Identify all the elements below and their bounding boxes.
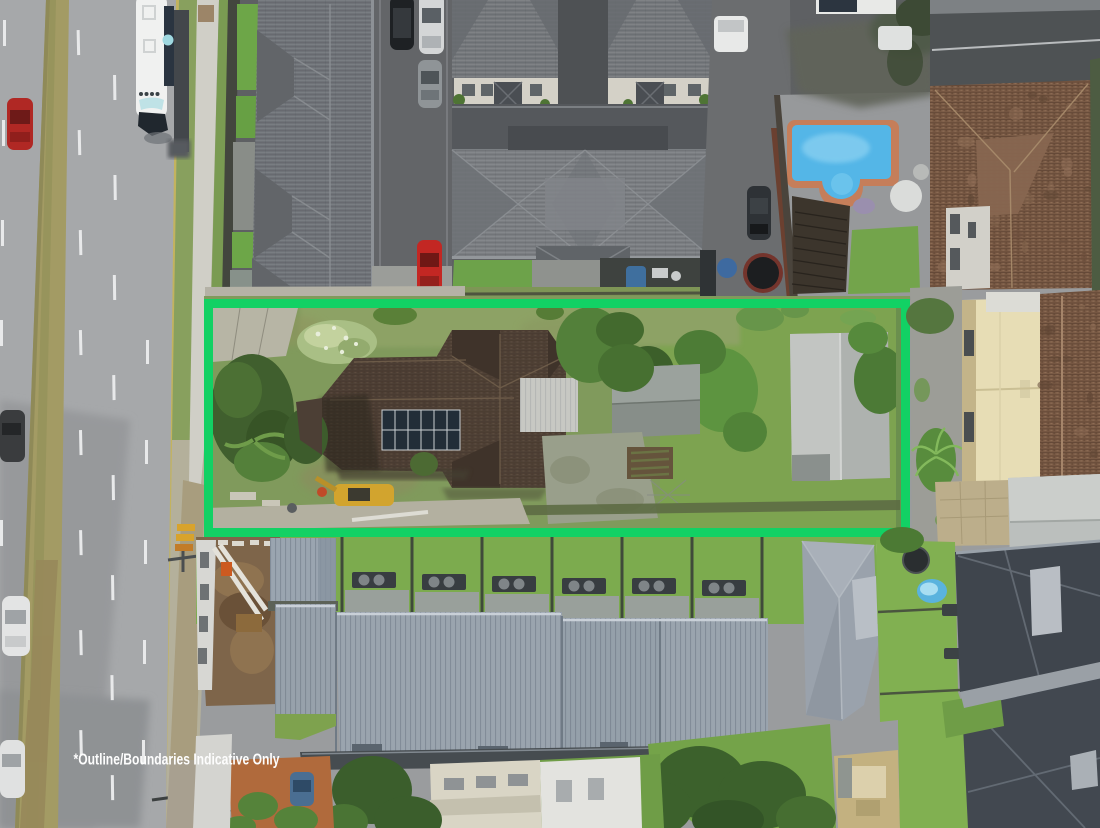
svg-text:*Outline/Boundaries Indicative: *Outline/Boundaries Indicative Only <box>74 752 280 769</box>
